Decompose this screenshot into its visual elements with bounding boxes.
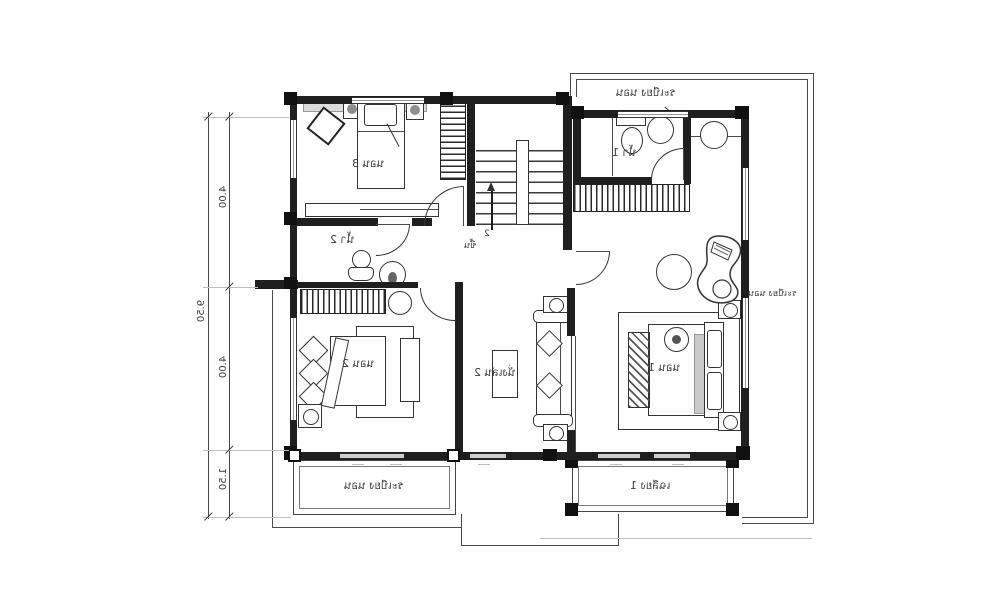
balcony-label-right: ระเบียง นอน	[748, 290, 797, 299]
speaker-cone	[303, 409, 319, 425]
balcony-label-top: ระเบียง นอน	[616, 87, 676, 98]
eaves-line	[570, 73, 571, 97]
column	[736, 446, 750, 460]
wall	[563, 96, 572, 250]
door-arc	[651, 148, 684, 180]
door-leaf	[463, 186, 464, 226]
balcony-label-bottom-left: ระเบียง นอน	[344, 480, 404, 491]
column	[571, 106, 584, 119]
wall	[567, 430, 575, 452]
wall	[684, 177, 691, 184]
door-tick	[672, 464, 684, 465]
sliding-door	[654, 453, 690, 459]
dimension-line-segments	[229, 112, 230, 519]
sofa-backrest-line	[560, 318, 561, 418]
door-tick	[610, 464, 622, 465]
lounge-chair	[692, 234, 746, 306]
dim-label-segment-top: 4.00	[219, 186, 229, 208]
eaves-line	[576, 79, 808, 80]
lamp-icon	[410, 105, 420, 115]
eaves-line	[813, 73, 814, 524]
eaves-line	[570, 73, 814, 74]
stair-rail	[516, 140, 529, 225]
bedroom2-bench	[400, 338, 420, 402]
window	[618, 111, 688, 118]
stair-arrow-line	[491, 190, 493, 230]
eaves-line-faint	[540, 538, 812, 539]
extension-line	[203, 450, 289, 451]
eaves-line	[742, 523, 814, 524]
speaker-cone	[549, 426, 564, 441]
wall	[290, 218, 378, 226]
door-arc	[576, 251, 610, 285]
balcony-post	[726, 503, 739, 516]
round-table	[656, 254, 692, 290]
column	[556, 92, 569, 105]
dim-label-segment-bottom: 1.50	[219, 468, 229, 490]
wall	[683, 110, 691, 178]
wall	[467, 96, 475, 226]
master-wardrobe	[573, 184, 690, 212]
window	[352, 97, 424, 104]
door-tick	[390, 464, 402, 465]
eaves-line	[272, 290, 273, 528]
floor-plan-canvas: นอน 3 น้ำ 2 นอน 2 นั่งเล่น 2 นอน 1 น้ำ 1…	[0, 0, 1000, 600]
window	[742, 168, 749, 240]
eaves-line	[461, 514, 462, 546]
sink-icon	[700, 121, 728, 149]
door-arc	[420, 288, 455, 321]
room-label-bathroom2: น้ำ 2	[330, 234, 354, 245]
washbasin-icon	[388, 291, 412, 315]
stair-label-number: 2	[484, 230, 490, 239]
window	[742, 298, 749, 388]
stair-upper-flight	[440, 102, 466, 180]
column	[440, 92, 453, 105]
stair-label-up: ขึ้น	[464, 242, 476, 251]
wall	[290, 96, 569, 104]
extension-line	[203, 517, 291, 518]
room-label-bedroom2: นอน 2	[342, 358, 374, 369]
column	[284, 212, 297, 225]
wall	[573, 110, 581, 184]
extension-line	[203, 117, 289, 118]
dim-label-overall: 9.50	[197, 300, 207, 322]
column	[543, 449, 557, 461]
porch-label-bottom-right: เฉลียง 1	[630, 480, 670, 491]
sink-icon	[647, 116, 674, 144]
speaker-cone	[723, 415, 738, 430]
door-arc	[424, 186, 464, 226]
window	[290, 318, 297, 420]
bedroom2-wardrobe	[300, 289, 386, 314]
column	[284, 92, 297, 105]
column-hollow	[288, 449, 301, 462]
bedroom3-desk	[305, 203, 439, 217]
door-leaf	[683, 148, 684, 180]
bed-pillow	[707, 330, 722, 368]
room-label-living2: นั่งเล่น 2	[474, 367, 515, 378]
column	[284, 277, 297, 289]
bed-pillow	[707, 372, 722, 410]
column-hollow	[447, 449, 460, 462]
dimension-line-overall	[208, 112, 209, 519]
column	[735, 106, 749, 119]
window	[290, 120, 297, 178]
wall	[741, 110, 749, 460]
eaves-line	[461, 545, 619, 546]
eaves-line	[618, 514, 619, 546]
door-leaf	[376, 224, 410, 225]
eaves-line	[807, 79, 808, 518]
wall	[573, 177, 652, 184]
room-label-bedroom3: นอน 3	[352, 158, 384, 169]
wall	[567, 288, 575, 336]
door-tick	[478, 464, 490, 465]
toilet-icon	[348, 267, 374, 281]
door-leaf	[576, 251, 610, 252]
eaves-line	[742, 517, 808, 518]
door-arc	[376, 224, 410, 256]
extension-line	[203, 287, 258, 288]
bedroom3-stool	[306, 106, 345, 145]
sliding-door	[598, 453, 640, 459]
speaker-cone	[549, 298, 564, 313]
eaves-line	[576, 79, 577, 97]
sliding-door	[340, 453, 404, 459]
wall	[455, 282, 463, 452]
eaves-line	[272, 527, 462, 528]
room-label-bedroom1: นอน 1	[648, 362, 680, 373]
balcony-post	[565, 503, 578, 516]
stair-arrow-head	[487, 182, 495, 191]
dim-label-segment-middle: 4.00	[219, 356, 229, 378]
wall	[290, 282, 418, 288]
lamp-icon	[672, 335, 681, 344]
wall-thin	[575, 336, 576, 452]
master-bed-rug	[628, 332, 650, 408]
sliding-door	[470, 453, 506, 459]
lamp-icon	[347, 104, 357, 114]
room-label-bathroom1: น้ำ 1	[612, 147, 636, 158]
door-tick	[352, 464, 364, 465]
